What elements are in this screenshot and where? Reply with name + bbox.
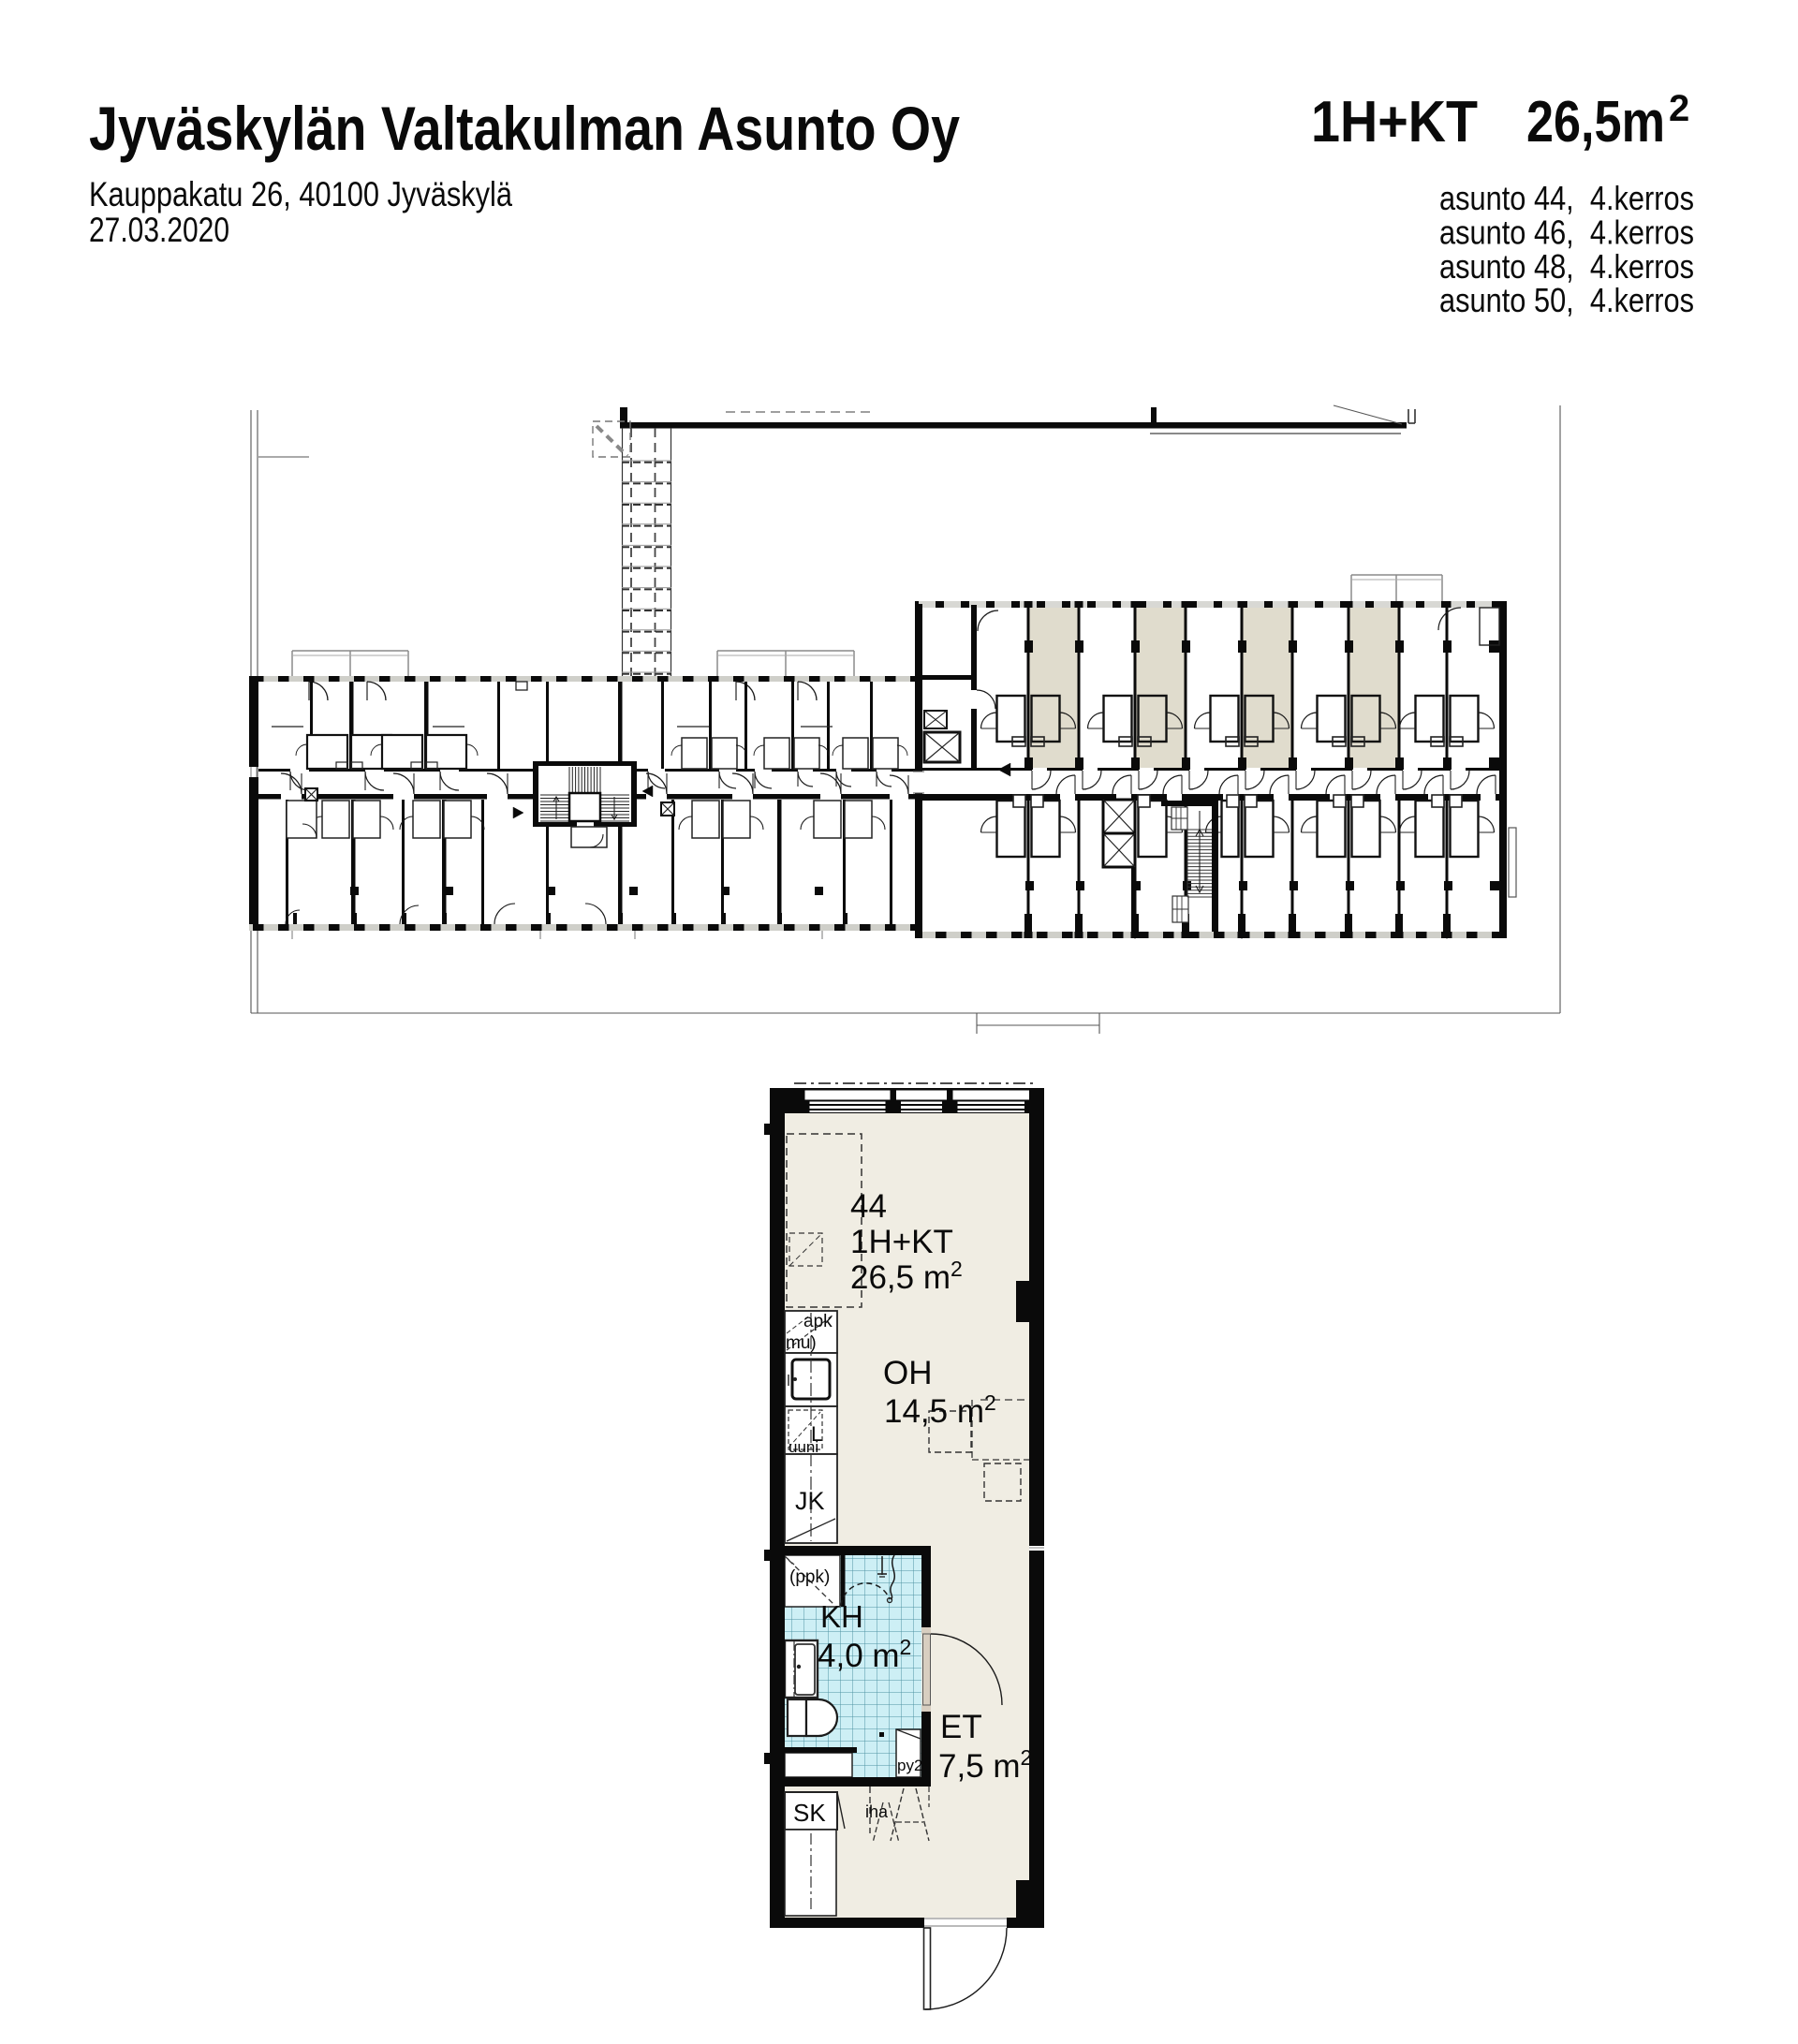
svg-text:1H+KT: 1H+KT xyxy=(1311,90,1478,154)
svg-text:26,5m: 26,5m xyxy=(1526,90,1665,154)
svg-text:asunto 46, 4.kerros: asunto 46, 4.kerros xyxy=(1439,213,1694,251)
svg-text:mu): mu) xyxy=(786,1333,817,1353)
svg-text:py2: py2 xyxy=(897,1757,922,1774)
svg-text:OH: OH xyxy=(883,1355,933,1391)
svg-text:iha: iha xyxy=(865,1802,889,1821)
svg-text:14,5 m2: 14,5 m2 xyxy=(884,1390,996,1430)
svg-text:1H+KT: 1H+KT xyxy=(850,1224,953,1260)
svg-text:KH: KH xyxy=(820,1599,863,1634)
svg-text:ET: ET xyxy=(940,1709,982,1745)
svg-text:44: 44 xyxy=(850,1188,887,1225)
svg-text:(ppk): (ppk) xyxy=(789,1567,830,1587)
svg-text:asunto 48, 4.kerros: asunto 48, 4.kerros xyxy=(1439,247,1694,286)
svg-text:asunto 50, 4.kerros: asunto 50, 4.kerros xyxy=(1439,281,1694,319)
svg-text:2: 2 xyxy=(1669,88,1689,129)
svg-text:asunto 44, 4.kerros: asunto 44, 4.kerros xyxy=(1439,179,1694,217)
svg-text:apk: apk xyxy=(803,1312,833,1331)
svg-text:uuni: uuni xyxy=(788,1438,818,1456)
svg-text:27.03.2020: 27.03.2020 xyxy=(89,211,229,249)
svg-text:JK: JK xyxy=(795,1487,825,1515)
svg-text:4,0 m2: 4,0 m2 xyxy=(818,1635,911,1674)
svg-text:26,5 m2: 26,5 m2 xyxy=(850,1257,963,1296)
svg-text:SK: SK xyxy=(793,1799,826,1827)
svg-text:Kauppakatu 26, 40100 Jyväskylä: Kauppakatu 26, 40100 Jyväskylä xyxy=(89,175,512,213)
svg-text:Jyväskylän Valtakulman Asunto: Jyväskylän Valtakulman Asunto Oy xyxy=(89,94,960,163)
svg-text:7,5 m2: 7,5 m2 xyxy=(938,1745,1032,1785)
